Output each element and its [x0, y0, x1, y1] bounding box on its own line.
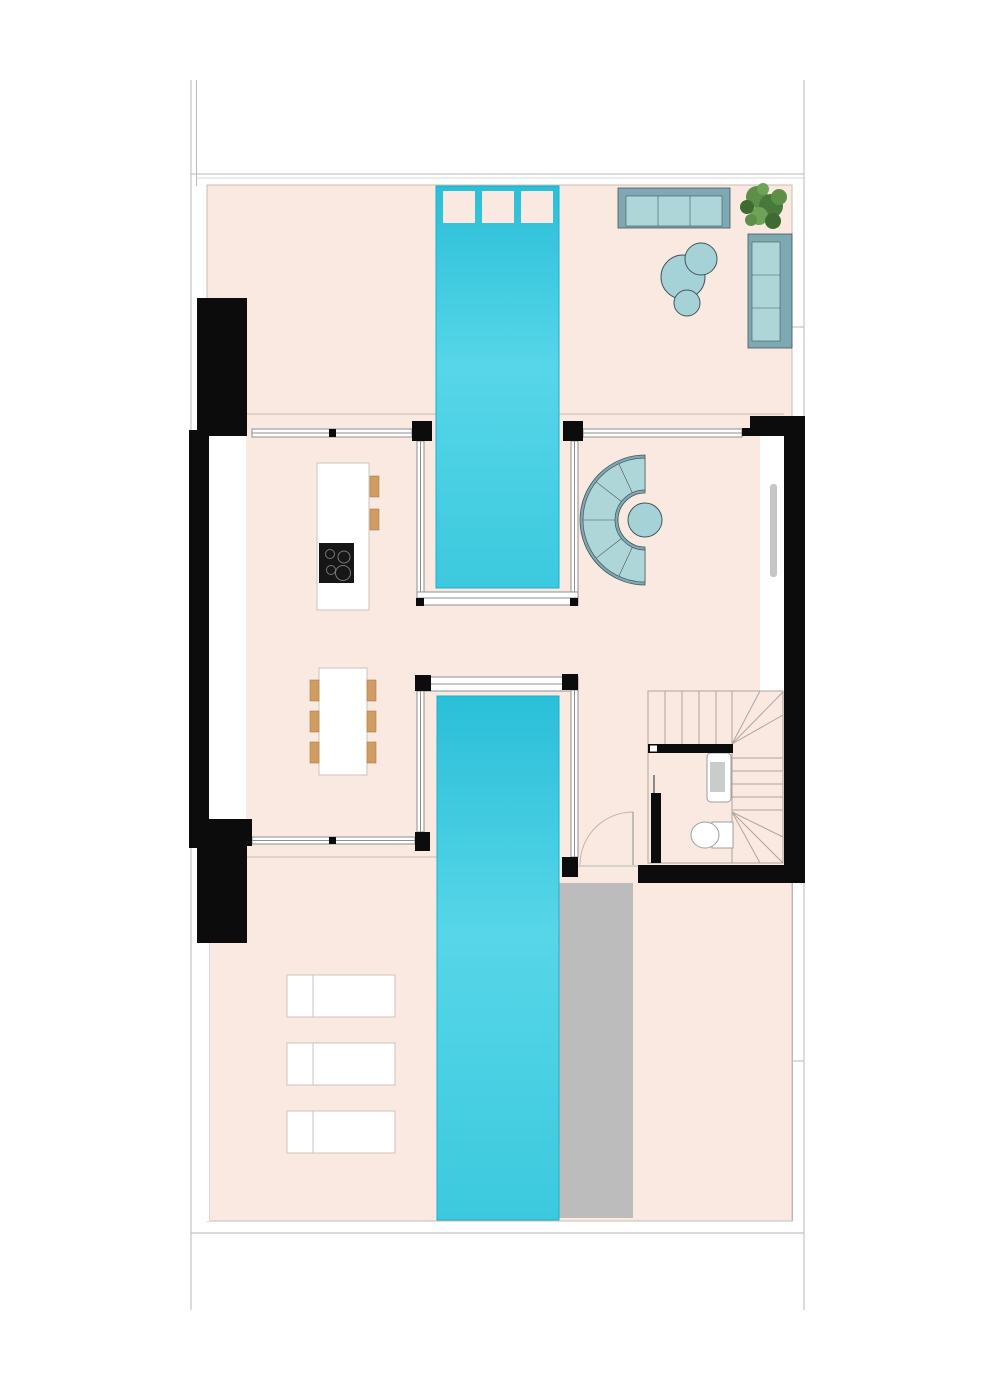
wall-column	[415, 675, 431, 691]
wall-radiator-bar	[770, 484, 777, 577]
upper-pool-water	[436, 186, 559, 588]
terrace-sofa2-cushions	[752, 242, 780, 341]
kitchen-island	[317, 463, 369, 610]
pool-step	[521, 191, 553, 223]
bar-stool	[370, 476, 379, 497]
wall-column	[570, 598, 578, 606]
wall	[651, 793, 661, 863]
dining-table	[319, 668, 367, 775]
wall	[197, 843, 247, 943]
void-strip-left	[208, 436, 246, 820]
wall	[197, 298, 247, 436]
lower-pool-water	[437, 696, 559, 1220]
wall-column	[563, 421, 583, 441]
pool-step	[443, 191, 475, 223]
wall-column	[415, 832, 430, 851]
washbasin-sink	[710, 762, 725, 792]
sun-lounger	[287, 1111, 395, 1153]
toilet-bowl	[691, 822, 719, 848]
wall	[638, 865, 805, 883]
dining-chair	[367, 742, 376, 763]
wall	[750, 416, 805, 436]
void-strip-bottom-left	[196, 943, 209, 1221]
bar-stool	[370, 509, 379, 530]
pool-step	[482, 191, 514, 223]
pouf-small	[674, 290, 700, 316]
plant-foliage	[765, 213, 781, 229]
wall	[189, 430, 209, 848]
wall	[648, 744, 733, 753]
walkway-path	[559, 883, 633, 1218]
sun-lounger	[287, 975, 395, 1017]
wall	[742, 428, 750, 436]
terrace-sofa-cushions	[626, 196, 722, 226]
wall-column	[562, 857, 578, 877]
window-mullion-tick	[329, 429, 336, 437]
plant-foliage	[740, 200, 754, 214]
floor-plan-page	[0, 0, 990, 1400]
wall-column	[562, 674, 578, 690]
round-side-table	[628, 503, 662, 537]
dining-chair	[367, 711, 376, 732]
dining-chair	[367, 680, 376, 701]
dining-chair	[310, 680, 319, 701]
wall	[208, 819, 252, 846]
pouf-medium	[685, 243, 717, 275]
dining-chair	[310, 742, 319, 763]
wall-column	[416, 598, 424, 606]
wall-column	[412, 421, 432, 441]
plant-foliage	[757, 183, 769, 195]
wall	[784, 436, 805, 883]
sun-lounger	[287, 1043, 395, 1085]
plant-foliage	[771, 189, 787, 205]
floor-plan-svg	[0, 0, 990, 1400]
dining-chair	[310, 711, 319, 732]
wall-notch	[650, 746, 657, 752]
plan-shapes-layer	[189, 80, 805, 1310]
window-mullion-tick	[329, 837, 336, 844]
plant-foliage	[745, 214, 757, 226]
